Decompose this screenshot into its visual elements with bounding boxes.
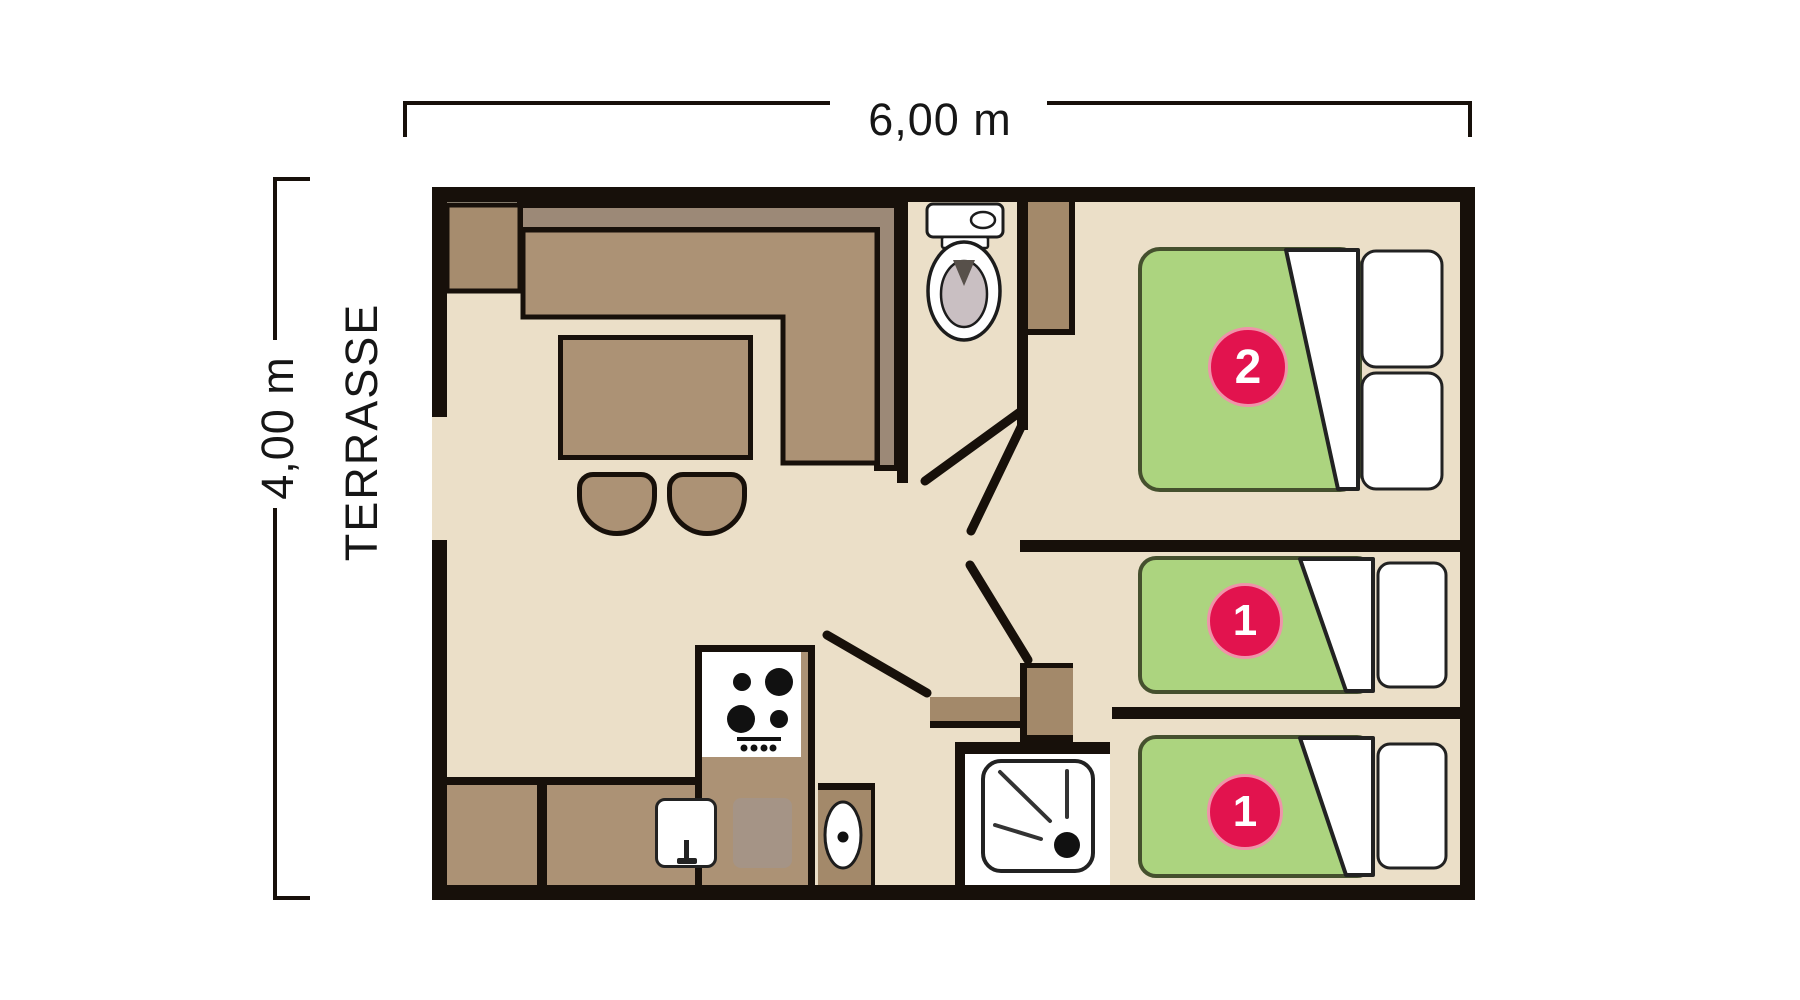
- floor-plan-page: 6,00 m 4,00 m TERRASSE 2: [0, 0, 1800, 1000]
- door-leaves: [0, 0, 1800, 1000]
